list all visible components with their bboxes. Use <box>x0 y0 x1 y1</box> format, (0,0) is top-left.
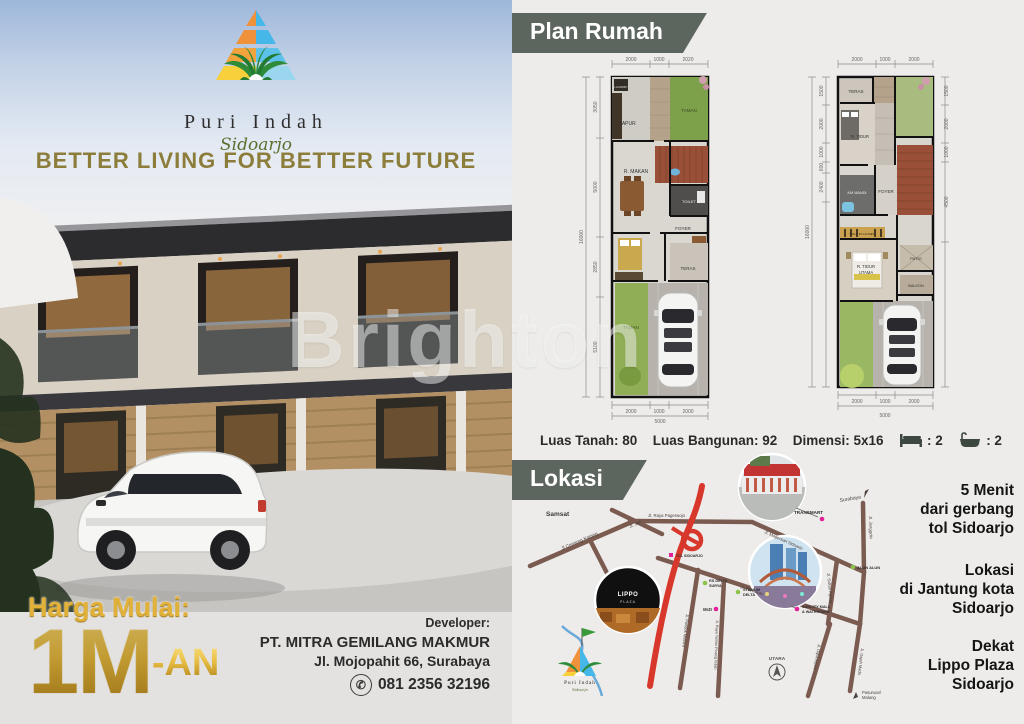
price-block: Harga Mulai: 1M-AN <box>28 592 219 701</box>
svg-text:Jl. Raya Pagerwojo: Jl. Raya Pagerwojo <box>648 513 686 518</box>
lippo-plaza-badge: LIPPO PLAZA <box>595 567 661 634</box>
svg-text:2850: 2850 <box>593 261 599 272</box>
svg-text:ALUN ALUN: ALUN ALUN <box>857 565 880 570</box>
svg-text:TERAS: TERAS <box>848 89 863 94</box>
svg-text:600: 600 <box>819 163 825 172</box>
svg-text:UTAMA: UTAMA <box>859 270 874 275</box>
svg-text:McD: McD <box>703 607 712 612</box>
puri-indah-logo-icon <box>210 8 302 104</box>
bed-icon <box>899 432 923 448</box>
house-render <box>0 188 512 613</box>
svg-text:5100: 5100 <box>593 341 599 352</box>
svg-text:R. TIDUR: R. TIDUR <box>857 264 875 269</box>
spec-baths: : 2 <box>958 432 1002 448</box>
svg-text:2000: 2000 <box>625 57 636 63</box>
price-suffix: -AN <box>152 642 220 684</box>
svg-text:WALK IN CLOSET: WALK IN CLOSET <box>849 232 874 236</box>
floorplan-2-car <box>879 305 925 385</box>
svg-text:PATIO: PATIO <box>910 256 921 261</box>
compass-icon <box>769 664 785 680</box>
svg-text:2000: 2000 <box>625 409 636 415</box>
plan-rumah-title: Plan Rumah <box>530 18 663 44</box>
svg-text:1000: 1000 <box>653 57 664 63</box>
svg-text:R. TIDUR: R. TIDUR <box>851 134 869 139</box>
spec-dimensi: Dimensi: 5x16 <box>793 433 884 448</box>
spec-baths-count: : 2 <box>986 433 1002 448</box>
developer-phone-row: ✆ 081 2356 32196 <box>260 674 490 696</box>
svg-text:Puri Indah: Puri Indah <box>564 680 596 686</box>
tagline: BETTER LIVING FOR BETTER FUTURE <box>0 148 512 174</box>
svg-text:2400: 2400 <box>819 181 825 192</box>
svg-text:1500: 1500 <box>944 85 950 96</box>
svg-text:KM MANDI: KM MANDI <box>848 191 867 195</box>
whatsapp-icon: ✆ <box>350 674 372 696</box>
svg-text:1500: 1500 <box>819 85 825 96</box>
svg-text:Sidoarjo: Sidoarjo <box>572 687 589 692</box>
svg-text:Malang: Malang <box>862 695 876 700</box>
svg-text:3050: 3050 <box>593 101 599 112</box>
highlight-center: Lokasi di Jantung kota Sidoarjo <box>880 562 1022 619</box>
spec-beds: : 2 <box>899 432 943 448</box>
brochure-page: Puri Indah Sidoarjo BETTER LIVING FOR BE… <box>0 0 1024 724</box>
brand-title: Puri Indah <box>0 111 512 134</box>
svg-text:5000: 5000 <box>593 181 599 192</box>
brand-block: Puri Indah Sidoarjo <box>0 8 512 155</box>
samsat-label: Samsat <box>546 511 570 518</box>
svg-text:RS DELTA: RS DELTA <box>709 579 728 583</box>
spec-beds-count: : 2 <box>927 433 943 448</box>
svg-text:FOYER: FOYER <box>675 226 691 231</box>
specs-row: Luas Tanah: 80 Luas Bangunan: 92 Dimensi… <box>540 432 1002 448</box>
svg-text:1000: 1000 <box>879 399 890 405</box>
floorplan-2: 2000 1000 2000 1500 2000 1000 600 2400 1… <box>788 46 988 424</box>
developer-name: PT. MITRA GEMILANG MAKMUR <box>260 634 490 651</box>
svg-text:Jl. Jenggolo: Jl. Jenggolo <box>868 516 874 540</box>
svg-text:2020: 2020 <box>682 57 693 63</box>
developer-address: Jl. Mojopahit 66, Surabaya <box>260 653 490 669</box>
svg-text:SURYA: SURYA <box>709 584 722 588</box>
location-map: LIPPO PLAZA Samsat TRANSMART TOL SIDOARJ… <box>512 448 936 724</box>
svg-text:16000: 16000 <box>805 225 811 239</box>
spec-luas-tanah: Luas Tanah: 80 <box>540 433 637 448</box>
bathtub-icon <box>958 432 982 448</box>
gate-arch <box>0 198 78 308</box>
svg-text:Jl. Diponegoro: Jl. Diponegoro <box>812 644 822 671</box>
map-project-logo: Puri Indah Sidoarjo <box>558 628 602 692</box>
svg-text:R. MAKAN: R. MAKAN <box>624 169 649 175</box>
developer-label: Developer: <box>260 616 490 630</box>
developer-phone: 081 2356 32196 <box>378 676 490 694</box>
svg-text:SUNCITY MALL: SUNCITY MALL <box>802 605 831 609</box>
suncity-photo <box>749 536 821 609</box>
svg-text:FOYER: FOYER <box>878 189 894 194</box>
svg-text:1000: 1000 <box>879 57 890 63</box>
left-panel: Puri Indah Sidoarjo BETTER LIVING FOR BE… <box>0 0 512 724</box>
transmart-label: TRANSMART <box>794 510 823 515</box>
svg-text:2000: 2000 <box>851 399 862 405</box>
svg-text:TOILET: TOILET <box>682 199 696 204</box>
svg-text:2000: 2000 <box>682 409 693 415</box>
svg-text:2000: 2000 <box>944 118 950 129</box>
svg-text:Jl. Raya Taman Pinang Indah: Jl. Raya Taman Pinang Indah <box>713 620 719 670</box>
floorplan-1: 2000 1000 2020 3050 5000 2850 5100 16000… <box>540 46 740 424</box>
svg-text:Jl. Gajah Mada: Jl. Gajah Mada <box>857 648 865 676</box>
svg-text:DELTA: DELTA <box>743 593 755 597</box>
svg-text:LAUNDRY: LAUNDRY <box>614 85 627 89</box>
svg-text:4500: 4500 <box>944 196 950 207</box>
utara-label: UTARA <box>769 656 786 662</box>
svg-text:2000: 2000 <box>819 118 825 129</box>
svg-text:1000: 1000 <box>819 146 825 157</box>
svg-text:& WATERPARK: & WATERPARK <box>802 610 830 614</box>
svg-text:TAMAN: TAMAN <box>623 325 638 330</box>
svg-text:2000: 2000 <box>851 57 862 63</box>
spec-luas-bangunan: Luas Bangunan: 92 <box>653 433 778 448</box>
svg-text:2000: 2000 <box>908 399 919 405</box>
floorplan-1-car <box>654 293 702 387</box>
svg-text:1000: 1000 <box>944 146 950 157</box>
tol-label: TOL SIDOARJO <box>676 554 703 558</box>
svg-text:2000: 2000 <box>908 57 919 63</box>
developer-block: Developer: PT. MITRA GEMILANG MAKMUR Jl.… <box>260 616 490 696</box>
svg-text:DAPUR: DAPUR <box>618 121 636 127</box>
svg-text:5000: 5000 <box>654 419 665 424</box>
svg-text:1000: 1000 <box>653 409 664 415</box>
price-value: 1M <box>28 611 152 713</box>
svg-text:Surabaya: Surabaya <box>839 494 861 504</box>
svg-text:16000: 16000 <box>579 230 585 244</box>
svg-text:PLAZA: PLAZA <box>620 600 636 604</box>
right-panel: Plan Rumah 2000 1000 2020 3050 5000 2850… <box>512 0 1024 724</box>
svg-text:BALKON: BALKON <box>908 284 924 288</box>
svg-text:LIPPO: LIPPO <box>618 592 639 598</box>
svg-text:TERAS: TERAS <box>680 266 695 271</box>
highlight-lippo: Dekat Lippo Plaza Sidoarjo <box>880 638 1022 695</box>
highlight-toll: 5 Menit dari gerbang tol Sidoarjo <box>880 482 1022 539</box>
svg-text:TAMAN: TAMAN <box>681 108 696 113</box>
svg-text:5000: 5000 <box>879 413 890 419</box>
